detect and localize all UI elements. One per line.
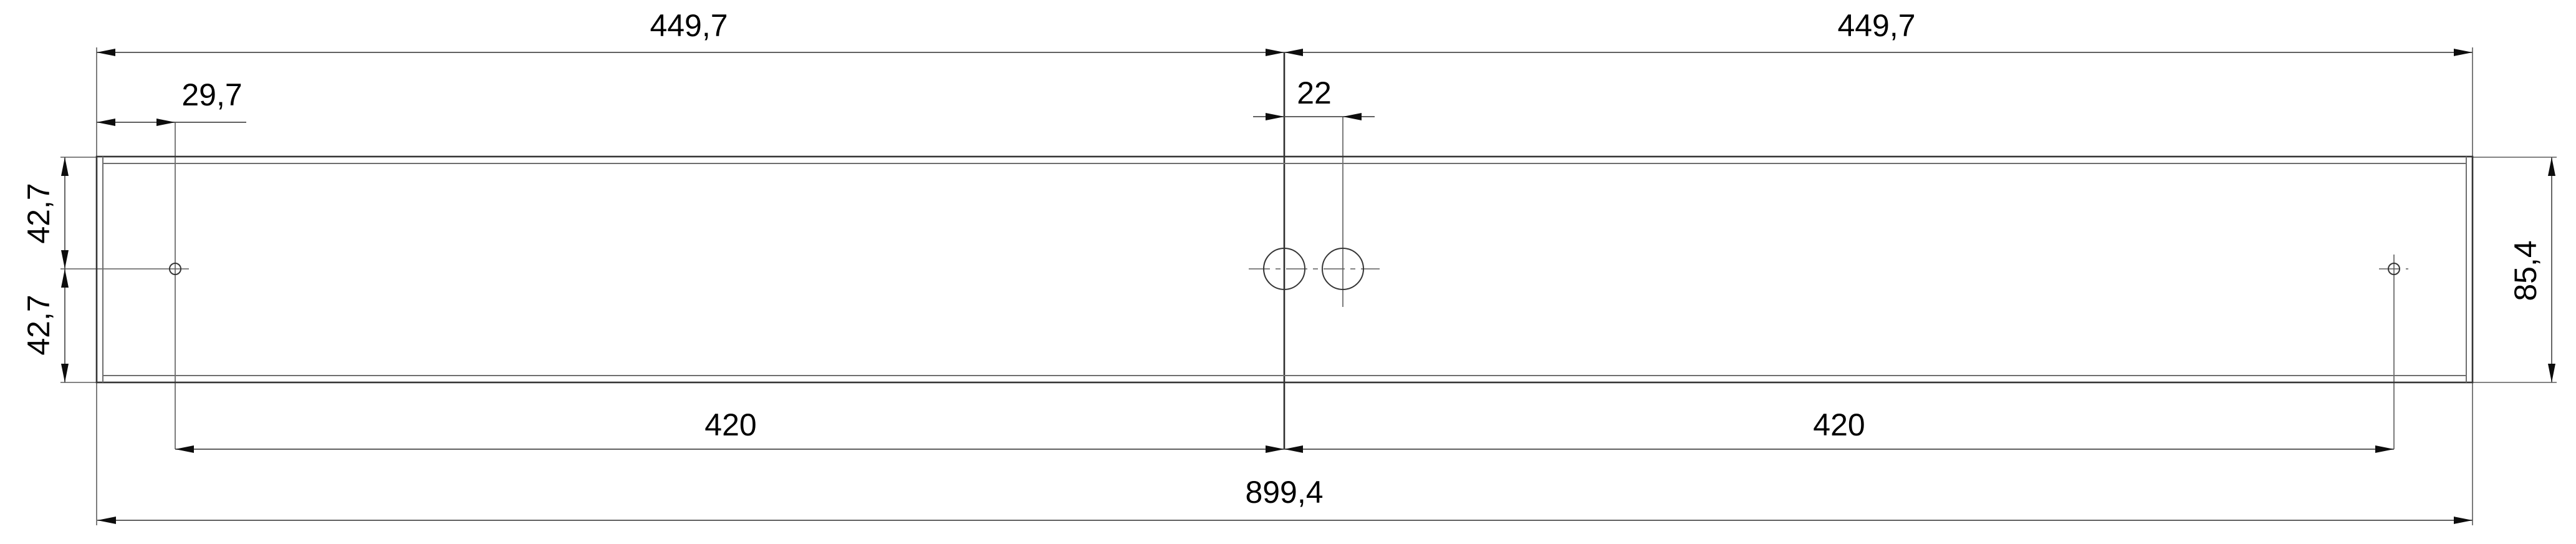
dimension-arrowhead	[2548, 364, 2555, 382]
dim-label-hole-span-left: 420	[704, 409, 756, 440]
dim-label-half-height-upper: 42,7	[23, 183, 54, 243]
dimension-arrowhead	[1266, 445, 1284, 453]
dimension-arrowhead	[97, 49, 115, 56]
dimension-arrowhead	[97, 119, 115, 126]
dimension-arrowhead	[1284, 49, 1303, 56]
technical-drawing: 449,7 449,7 29,7 22 42,7 42,7 85,4 420 4…	[0, 0, 2576, 544]
drawing-geometry	[0, 0, 2576, 544]
dimension-arrowhead	[2375, 445, 2394, 453]
dimension-arrowhead	[1266, 49, 1284, 56]
dimension-arrowhead	[1284, 445, 1303, 453]
dimension-arrowhead	[61, 364, 69, 382]
dimension-arrowhead	[61, 157, 69, 176]
dimension-arrowhead	[2454, 49, 2473, 56]
dim-label-half-height-lower: 42,7	[23, 294, 54, 355]
dimension-arrowhead	[61, 269, 69, 288]
dimension-arrowhead	[2454, 517, 2473, 524]
dim-label-length-top-left: 449,7	[650, 10, 728, 41]
dimension-arrowhead	[1343, 113, 1362, 120]
dim-label-hole-spacing-middle: 22	[1297, 77, 1332, 109]
dimension-arrowhead	[175, 445, 194, 453]
dimension-arrowhead	[2548, 157, 2555, 176]
dim-label-hole-span-right: 420	[1813, 409, 1865, 440]
dim-label-total-height: 85,4	[2510, 240, 2541, 301]
dimension-arrowhead	[97, 517, 116, 524]
dim-label-total-length: 899,4	[1245, 477, 1323, 508]
dimension-arrowhead	[61, 250, 69, 269]
dim-label-length-top-right: 449,7	[1837, 10, 1915, 41]
dim-label-hole-offset-left: 29,7	[181, 79, 242, 110]
dimension-arrowhead	[1266, 113, 1284, 120]
dimension-arrowhead	[156, 119, 175, 126]
